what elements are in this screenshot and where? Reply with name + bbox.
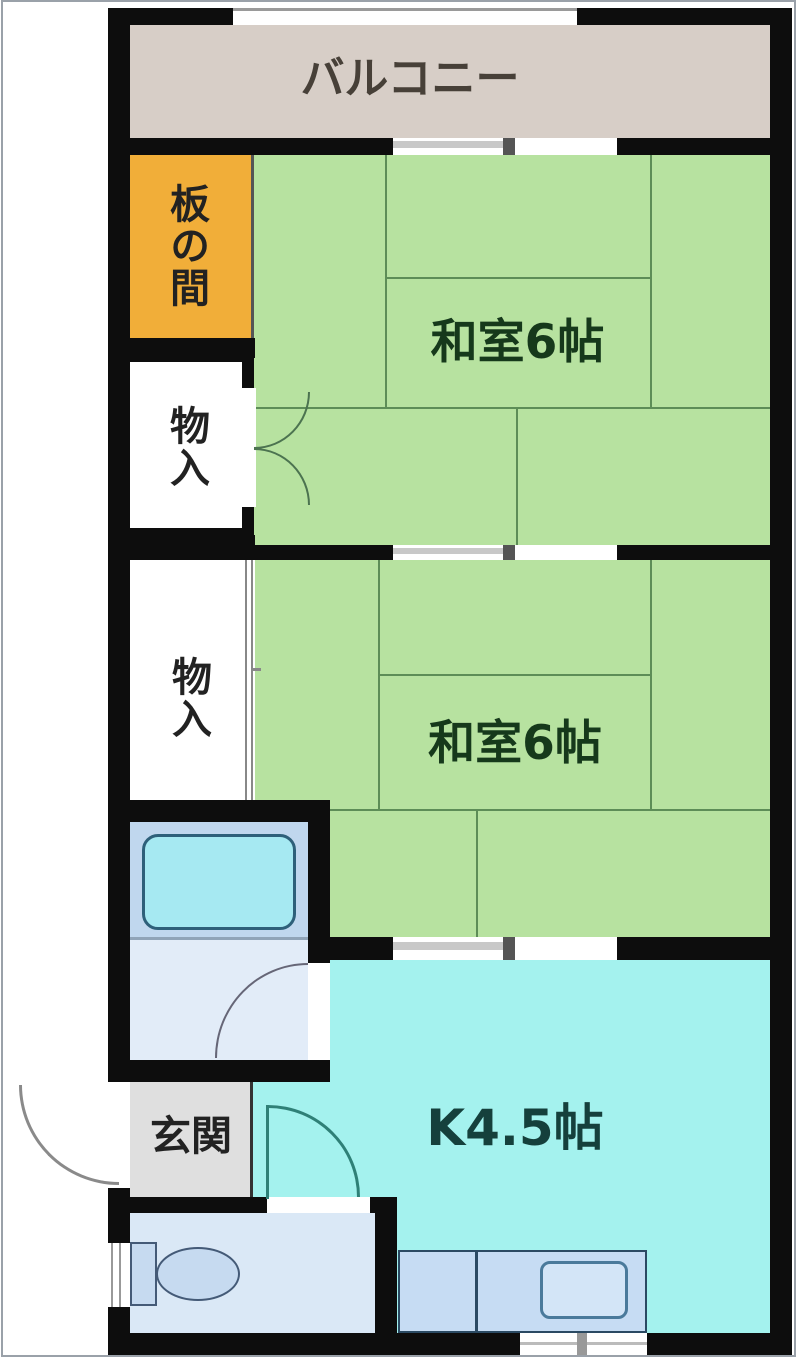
frame-border xyxy=(1,0,796,1357)
floor-plan-canvas: バルコニー 板の間 和室6帖 物入 物入 和室6帖 玄関 K4.5帖 xyxy=(0,0,800,1365)
